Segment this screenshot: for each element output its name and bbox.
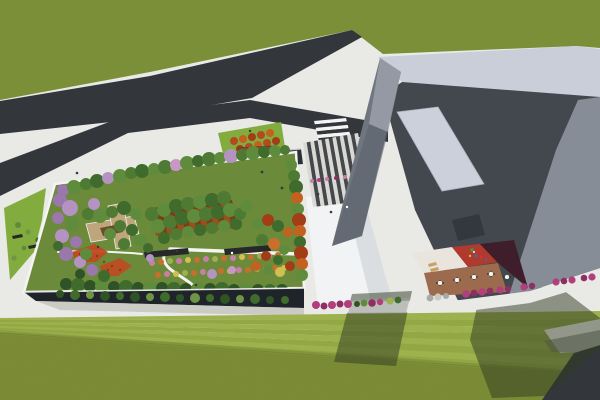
facade-plants xyxy=(266,296,274,304)
building-flower-hedge xyxy=(471,290,478,297)
facade-plants xyxy=(146,293,154,301)
garden-trees-center xyxy=(187,209,201,223)
facade-plants xyxy=(70,290,80,300)
garden-trees-center xyxy=(182,226,194,238)
garden-trees-purple xyxy=(98,270,110,282)
garden-trees-top xyxy=(236,149,248,161)
pedestrians xyxy=(485,259,487,261)
building-flower-hedge xyxy=(487,288,494,295)
building-flower-hedge xyxy=(443,293,449,299)
plaza-planting xyxy=(325,177,329,181)
building-flower-hedge xyxy=(520,283,527,290)
building-flower-hedge xyxy=(505,286,511,292)
roadside-bushes xyxy=(11,255,16,260)
garden-trees-east xyxy=(285,159,297,171)
garden-trees-center xyxy=(205,193,219,207)
roadside-bushes xyxy=(22,246,27,251)
plaza-planting xyxy=(310,179,314,183)
garden-shrub-row xyxy=(200,269,206,275)
garden-trees-purple xyxy=(75,269,85,279)
garden-trees-west xyxy=(143,243,153,253)
garden-trees-center xyxy=(169,199,183,213)
garden-trees-top xyxy=(158,160,172,174)
building-flower-hedge xyxy=(434,293,441,300)
garden-trees-top xyxy=(67,180,81,194)
building-flower-hedge xyxy=(462,290,470,298)
garden-trees-center xyxy=(163,215,177,229)
garden-trees-autumn xyxy=(273,255,283,265)
garden-trees-west xyxy=(118,238,130,250)
garden-trees-autumn xyxy=(285,261,295,271)
garden-trees-purple xyxy=(86,264,98,276)
roadside-bushes xyxy=(15,222,21,228)
garden-shrub-row xyxy=(158,259,164,265)
architectural-render xyxy=(0,0,600,400)
plaza-red-trees xyxy=(272,137,280,145)
garden-trees-center xyxy=(175,211,189,225)
garden-trees-center xyxy=(193,195,207,209)
garden-trees-west xyxy=(130,208,142,220)
garden-trees-center xyxy=(170,228,182,240)
garden-trees-center xyxy=(151,219,165,233)
building-flower-hedge xyxy=(377,299,383,305)
garden-trees-center xyxy=(217,191,231,205)
plaza-planting xyxy=(334,176,338,180)
courtyard-tables xyxy=(493,273,495,275)
garden-trees-purple xyxy=(65,217,79,231)
courtyard-tables xyxy=(436,282,438,284)
plaza-red-trees xyxy=(239,135,247,143)
building-flower-hedge xyxy=(588,273,595,280)
facade-plants xyxy=(176,294,184,302)
facade-plants xyxy=(130,292,140,302)
pedestrians xyxy=(249,130,251,132)
garden-trees-center xyxy=(240,200,252,212)
courtyard-play-equipment xyxy=(473,251,475,253)
courtyard-tables xyxy=(455,278,459,282)
flower-bed-texture xyxy=(111,265,113,267)
courtyard-play-equipment xyxy=(478,249,480,251)
garden-trees-autumn xyxy=(272,220,284,232)
garden-trees-purple xyxy=(80,248,92,260)
building-flower-hedge xyxy=(344,300,352,308)
courtyard-tables xyxy=(487,273,489,275)
courtyard-tables xyxy=(459,279,461,281)
garden-trees-top xyxy=(113,169,127,183)
pedestrians xyxy=(76,172,79,175)
facade-plants xyxy=(206,294,214,302)
building-flower-hedge xyxy=(328,301,336,309)
garden-shrub-row xyxy=(212,256,218,262)
garden-trees-top xyxy=(280,145,290,155)
garden-visitors xyxy=(176,250,178,252)
garden-trees-top xyxy=(192,155,204,167)
garden-shrub-row xyxy=(164,271,170,277)
garden-trees-top xyxy=(170,159,182,171)
building-flower-hedge xyxy=(321,303,328,310)
garden-trees-top xyxy=(224,149,238,163)
scene-canvas xyxy=(0,0,600,400)
garden-trees-center xyxy=(211,205,225,219)
garden-trees-top xyxy=(102,172,114,184)
garden-trees-autumn xyxy=(262,214,274,226)
garden-shrub-row xyxy=(230,255,236,261)
garden-trees-autumn xyxy=(263,265,273,275)
garden-trees-west xyxy=(114,220,126,232)
courtyard-tables xyxy=(503,276,505,278)
garden-trees-east xyxy=(292,213,306,227)
garden-trees-west xyxy=(104,228,116,240)
garden-visitors xyxy=(231,252,233,254)
garden-trees-top xyxy=(148,163,160,175)
garden-shrub-row xyxy=(239,254,245,260)
pedestrians xyxy=(317,193,320,196)
building-flower-hedge xyxy=(581,275,588,282)
facade-plants xyxy=(236,295,244,303)
courtyard-tables xyxy=(509,276,511,278)
garden-trees-accent xyxy=(207,269,217,279)
garden-trees-top xyxy=(180,156,194,170)
facade-plants xyxy=(56,290,64,298)
building-flower-hedge xyxy=(529,283,535,289)
building-flower-hedge xyxy=(368,299,376,307)
courtyard-tables xyxy=(489,272,493,276)
garden-trees-center xyxy=(145,207,159,221)
courtyard-tables xyxy=(438,281,442,285)
building-flower-hedge xyxy=(395,297,402,304)
facade-plants xyxy=(250,294,260,304)
building-flower-hedge xyxy=(496,286,503,293)
courtyard-play-equipment xyxy=(469,255,471,257)
building-flower-hedge xyxy=(478,288,486,296)
garden-trees-top xyxy=(214,152,226,164)
garden-trees-center xyxy=(158,232,170,244)
garden-trees-center xyxy=(181,197,195,211)
garden-shrub-row xyxy=(245,267,251,273)
garden-shrub-row xyxy=(194,257,200,263)
garden-trees-bottom xyxy=(71,278,85,292)
building-flower-hedge xyxy=(427,295,434,302)
garden-trees-east xyxy=(296,269,308,281)
pedestrians xyxy=(330,211,333,214)
flower-bed-texture xyxy=(103,261,105,263)
facade-plants xyxy=(190,293,200,303)
garden-shrub-row xyxy=(167,258,173,264)
garden-trees-top xyxy=(258,146,270,158)
courtyard-tables xyxy=(476,276,478,278)
garden-trees-center xyxy=(194,224,206,236)
garden-trees-autumn xyxy=(268,238,280,250)
garden-trees-accent xyxy=(146,254,154,262)
garden-shrub-row xyxy=(191,270,197,276)
courtyard-play-equipment xyxy=(470,248,473,251)
facade-plants xyxy=(100,291,110,301)
pedestrians xyxy=(346,206,348,208)
garden-trees-bottom xyxy=(60,278,72,290)
garden-trees-top xyxy=(125,167,137,179)
building-flower-hedge xyxy=(312,301,320,309)
facade-plants xyxy=(281,296,289,304)
courtyard-tables xyxy=(470,276,472,278)
garden-trees-center xyxy=(199,207,213,221)
garden-shrub-row xyxy=(176,258,182,264)
garden-trees-autumn xyxy=(261,251,271,261)
garden-trees-purple xyxy=(70,236,82,248)
garden-trees-autumn xyxy=(279,245,289,255)
garden-trees-accent xyxy=(228,266,236,274)
garden-shrub-row xyxy=(221,255,227,261)
garden-trees-top xyxy=(90,174,104,188)
roadside-bushes xyxy=(25,229,30,234)
garden-trees-east xyxy=(294,225,306,237)
plaza-red-trees xyxy=(266,129,274,137)
facade-plants xyxy=(86,291,94,299)
plaza-red-trees xyxy=(257,131,265,139)
garden-trees-top xyxy=(202,152,216,166)
courtyard-tables xyxy=(453,279,455,281)
garden-trees-west xyxy=(106,206,118,218)
facade-plants xyxy=(220,294,230,304)
garden-shrub-row xyxy=(236,267,242,273)
building-flower-hedge xyxy=(568,276,575,283)
garden-trees-east xyxy=(296,258,308,270)
garden-visitors xyxy=(195,284,198,287)
courtyard-tables xyxy=(505,275,509,279)
garden-shrub-row xyxy=(155,272,161,278)
garden-trees-purple xyxy=(62,200,78,216)
garden-shrub-row xyxy=(173,271,179,277)
garden-trees-center xyxy=(218,220,230,232)
garden-shrub-row xyxy=(248,254,254,260)
garden-trees-top xyxy=(246,146,260,160)
garden-shrub-row xyxy=(203,256,209,262)
pedestrians xyxy=(281,187,284,190)
garden-trees-west xyxy=(134,234,146,246)
garden-trees-east xyxy=(288,170,300,182)
plaza-red-trees xyxy=(230,137,238,145)
facade-plants xyxy=(116,292,124,300)
garden-shrub-row xyxy=(218,268,224,274)
garden-trees-autumn xyxy=(275,267,285,277)
courtyard-tables xyxy=(442,282,444,284)
garden-trees-east xyxy=(289,180,303,194)
facade-plants xyxy=(160,292,170,302)
garden-trees-center xyxy=(206,222,218,234)
building-flower-hedge xyxy=(561,278,568,285)
garden-trees-west xyxy=(93,209,107,223)
garden-trees-autumn xyxy=(251,261,261,271)
plaza-planting xyxy=(343,175,347,179)
garden-trees-autumn xyxy=(283,227,293,237)
garden-trees-west xyxy=(117,201,131,215)
garden-trees-center xyxy=(157,203,171,217)
garden-trees-west xyxy=(126,224,138,236)
flower-bed-texture xyxy=(107,269,109,271)
garden-trees-purple xyxy=(53,241,63,251)
garden-trees-autumn xyxy=(256,234,268,246)
garden-trees-purple xyxy=(55,229,69,243)
garden-trees-top xyxy=(135,164,149,178)
building-flower-hedge xyxy=(386,297,393,304)
garden-trees-purple xyxy=(52,212,64,224)
building-flower-hedge xyxy=(552,278,559,285)
building-flower-hedge xyxy=(337,301,344,308)
flower-bed-texture xyxy=(96,255,98,257)
pedestrians xyxy=(261,171,264,174)
garden-shrub-row xyxy=(185,257,191,263)
garden-trees-purple xyxy=(82,208,94,220)
garden-trees-top xyxy=(269,145,281,157)
garden-shrub-row xyxy=(182,270,188,276)
building-flower-hedge xyxy=(354,301,360,307)
garden-visitors xyxy=(97,246,99,248)
garden-trees-bottom xyxy=(84,280,96,292)
courtyard-play-equipment xyxy=(475,255,478,258)
garden-trees-east xyxy=(294,246,308,260)
pedestrians xyxy=(480,256,483,259)
flower-bed-texture xyxy=(119,269,121,271)
garden-trees-purple xyxy=(88,198,100,210)
building-flower-hedge xyxy=(361,300,368,307)
plaza-red-trees xyxy=(248,133,256,141)
plaza-planting xyxy=(317,178,321,182)
courtyard-tables xyxy=(472,275,476,279)
garden-trees-east xyxy=(291,192,303,204)
